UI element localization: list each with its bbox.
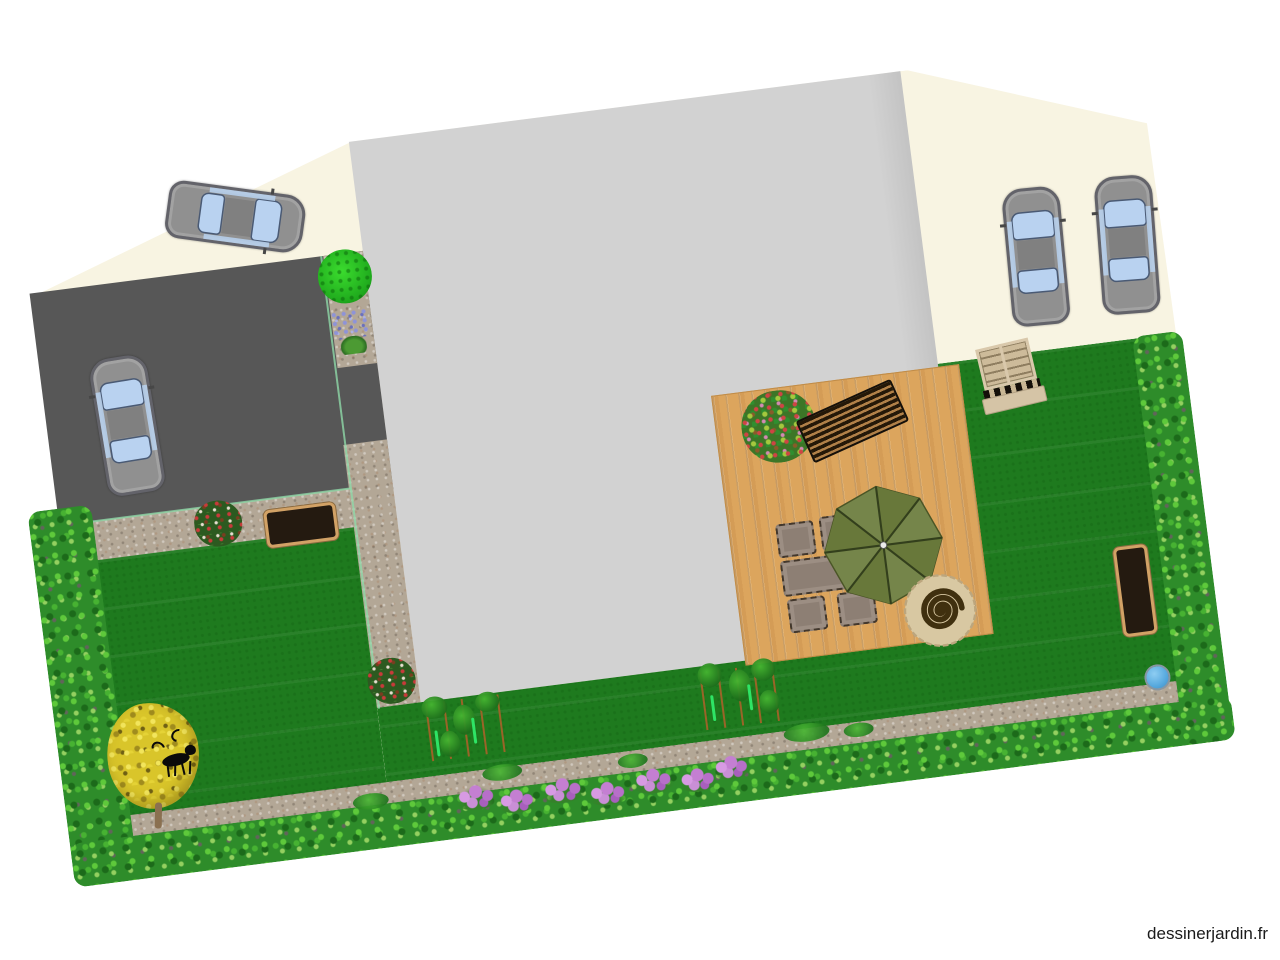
car-rear-window [1109, 257, 1148, 281]
vine-shoot [710, 695, 716, 721]
dog-leg [174, 763, 176, 776]
vine-foliage [439, 730, 462, 758]
car-driveway-2[interactable] [1093, 174, 1161, 316]
dog-leg [181, 762, 186, 775]
grass-tuft[interactable] [340, 334, 368, 355]
car-mirror [1152, 207, 1158, 210]
car-windshield [252, 200, 282, 243]
car-roof [1016, 238, 1055, 270]
dog-leg [189, 761, 192, 774]
vine-shoot [747, 684, 753, 710]
car-mirror [1092, 212, 1098, 215]
yellow-tree-trunk [155, 802, 162, 828]
vine-shoot [471, 718, 477, 744]
car-mirror [1060, 219, 1066, 223]
dog-head [184, 744, 196, 755]
car-roof [1108, 226, 1146, 258]
garden-plan-canvas [0, 0, 1280, 952]
garden-plan-page: dessinerjardin.fr [0, 0, 1280, 960]
vine-trellis-2[interactable] [695, 662, 788, 736]
car-mirror [1000, 224, 1006, 228]
car-roof [221, 197, 255, 237]
car-windshield [1012, 211, 1054, 240]
armchair-1[interactable] [775, 520, 817, 559]
car-windshield [1104, 199, 1146, 227]
watermark: dessinerjardin.fr [1147, 924, 1268, 944]
spiral-ornament[interactable] [898, 568, 983, 653]
armchair-3[interactable] [787, 595, 829, 634]
dog-figure[interactable] [153, 733, 202, 782]
car-rear-window [1018, 269, 1058, 293]
vine-trellis-1[interactable] [421, 693, 514, 767]
car-roof [107, 406, 147, 440]
